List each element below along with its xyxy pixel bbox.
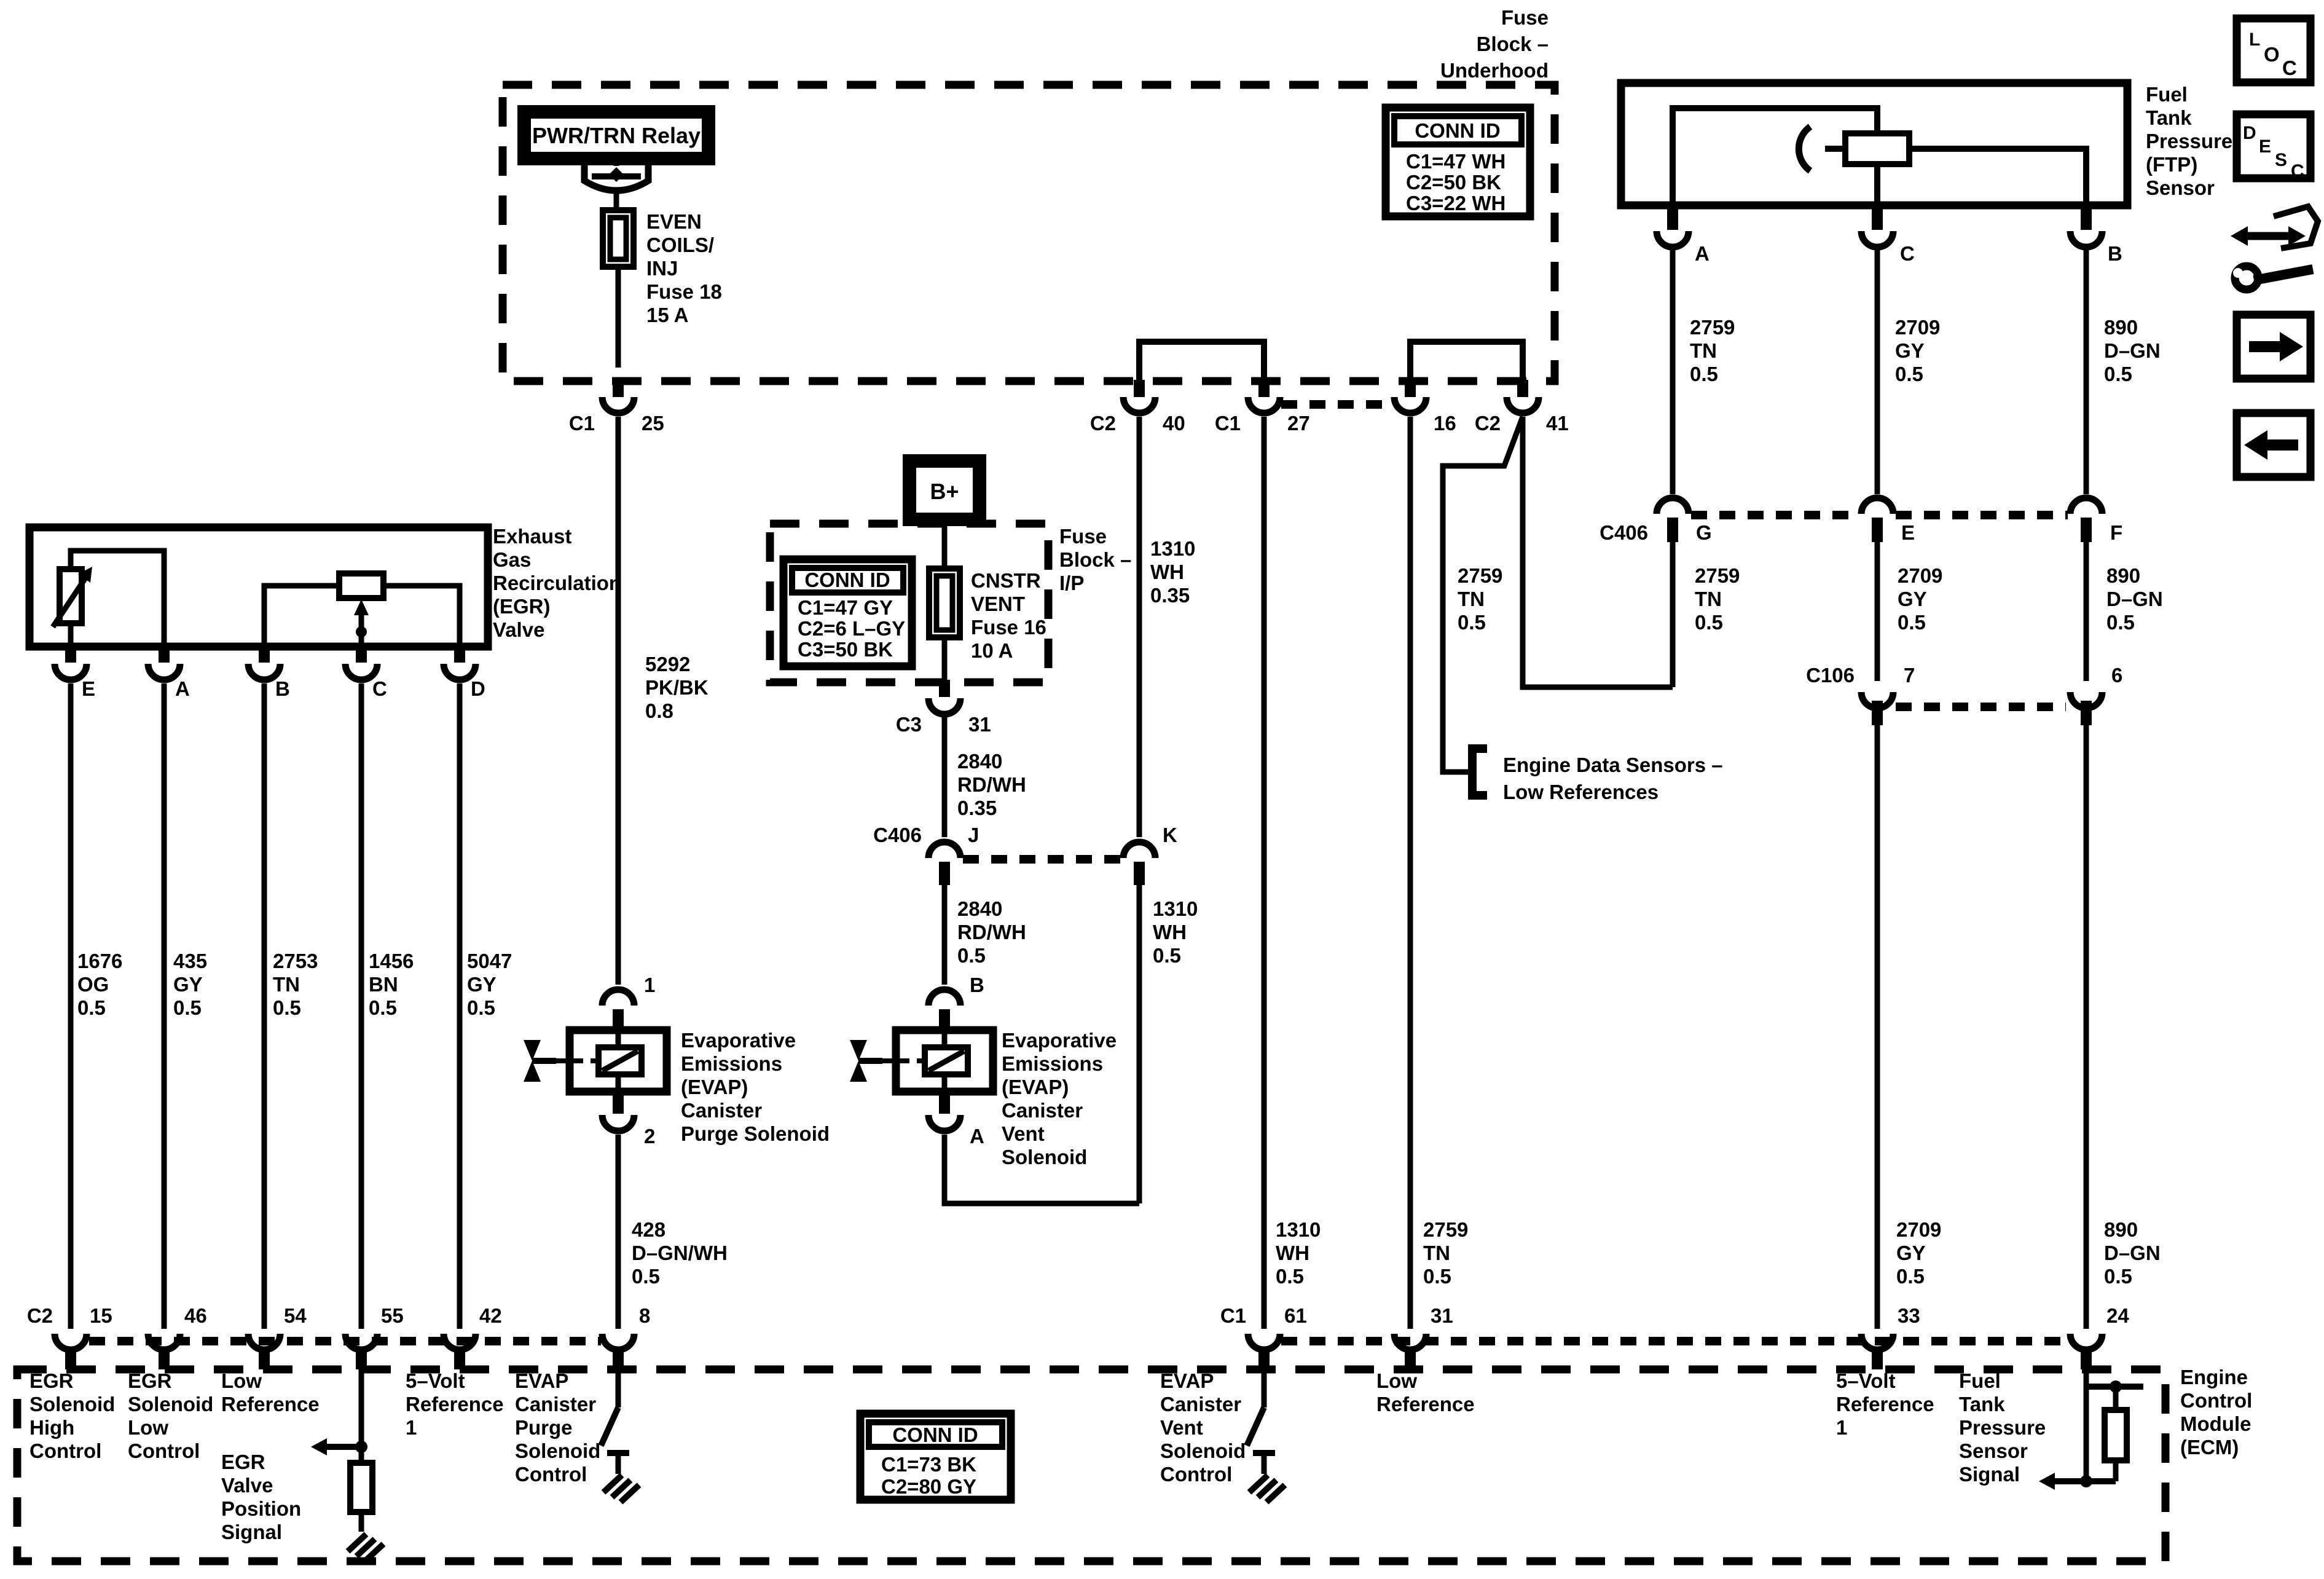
svg-text:1310: 1310 [1276, 1218, 1321, 1241]
svg-text:EGR: EGR [221, 1451, 265, 1473]
svg-text:Control: Control [515, 1463, 587, 1486]
svg-text:8: 8 [639, 1304, 650, 1327]
ip-conn-id-box: CONN ID C1=47 GY C2=6 L–GY C3=50 BK [783, 559, 912, 666]
svg-text:C2=80 GY: C2=80 GY [881, 1475, 976, 1498]
underhood-title: Fuse [1501, 6, 1549, 29]
svg-text:D–GN: D–GN [2104, 339, 2161, 362]
svg-text:2840: 2840 [957, 897, 1002, 920]
svg-text:1676: 1676 [77, 950, 122, 972]
ground-symbol-55 [348, 1534, 383, 1561]
svg-text:Solenoid: Solenoid [515, 1439, 600, 1462]
egr-connector-row [55, 647, 476, 680]
svg-text:2753: 2753 [273, 950, 318, 972]
svg-text:TN: TN [273, 973, 300, 996]
svg-text:Valve: Valve [493, 618, 544, 641]
svg-text:C1=47 GY: C1=47 GY [798, 596, 893, 619]
b-plus-label: B+ [930, 479, 959, 504]
egr-label: Exhaust [493, 525, 571, 548]
svg-text:PK/BK: PK/BK [645, 676, 709, 699]
ftp-wires: 2759 TN 0.5 2709 GY 0.5 890 D–GN 0.5 [1673, 247, 2161, 494]
svg-text:High: High [29, 1416, 74, 1439]
svg-text:Control: Control [128, 1439, 200, 1462]
purge-solenoid: 1 2 [524, 974, 667, 1148]
svg-text:D–GN: D–GN [2106, 588, 2163, 610]
svg-text:0.5: 0.5 [632, 1265, 660, 1288]
ftp-pin-b: B [2108, 242, 2122, 265]
svg-text:(EGR): (EGR) [493, 595, 551, 618]
wiring-diagram: Fuse Block – Underhood PWR/TRN Relay EVE… [0, 0, 2324, 1579]
svg-text:0.5: 0.5 [369, 996, 397, 1019]
jumper-40-27 [1139, 342, 1264, 380]
svg-text:E: E [2259, 136, 2271, 157]
svg-text:890: 890 [2106, 564, 2140, 587]
svg-text:Signal: Signal [1959, 1463, 2020, 1486]
svg-text:Low: Low [128, 1416, 168, 1439]
svg-text:5–Volt: 5–Volt [1836, 1369, 1896, 1392]
svg-text:0.5: 0.5 [173, 996, 202, 1019]
svg-text:0.5: 0.5 [273, 996, 301, 1019]
svg-text:Low: Low [221, 1369, 262, 1392]
ecm-purge-driver [601, 1352, 639, 1502]
purge-label: Evaporative [681, 1029, 796, 1052]
svg-text:55: 55 [381, 1304, 404, 1327]
svg-text:INJ: INJ [646, 257, 678, 280]
low-reference-branch: Engine Data Sensors – Low References 275… [1443, 417, 1723, 803]
egr-pin-a: A [175, 677, 190, 700]
egr-valve: Exhaust Gas Recirculation (EGR) Valve [29, 525, 621, 700]
svg-text:0.35: 0.35 [957, 797, 997, 819]
svg-text:46: 46 [184, 1304, 207, 1327]
svg-text:0.35: 0.35 [1150, 584, 1190, 607]
svg-text:(FTP): (FTP) [2146, 153, 2197, 176]
egr-wires [71, 683, 460, 1329]
ecm-function-labels: EGR Solenoid High Control EGR Solenoid L… [29, 1369, 2046, 1543]
svg-text:Control: Control [2180, 1389, 2252, 1412]
svg-text:41: 41 [1546, 412, 1569, 435]
svg-text:WH: WH [1150, 561, 1184, 583]
c406-pin-e: E [1901, 521, 1915, 544]
svg-text:2759: 2759 [1690, 316, 1735, 339]
svg-text:Pressure: Pressure [1959, 1416, 2046, 1439]
svg-text:OG: OG [77, 973, 109, 996]
svg-text:WH: WH [1276, 1242, 1309, 1264]
svg-text:0.5: 0.5 [1695, 611, 1723, 634]
cnstr-fuse-label: CNSTR [971, 569, 1041, 592]
svg-text:Canister: Canister [681, 1099, 762, 1122]
svg-text:CONN ID: CONN ID [892, 1423, 978, 1446]
svg-text:54: 54 [284, 1304, 307, 1327]
svg-text:C1: C1 [1215, 412, 1241, 435]
svg-text:I/P: I/P [1059, 572, 1084, 594]
svg-text:C3=50 BK: C3=50 BK [798, 638, 893, 661]
svg-text:Canister: Canister [1160, 1393, 1241, 1416]
svg-text:RD/WH: RD/WH [957, 773, 1026, 796]
svg-text:Gas: Gas [493, 548, 531, 571]
svg-text:Fuse 16: Fuse 16 [971, 616, 1046, 639]
svg-text:TN: TN [1458, 588, 1485, 610]
svg-text:5292: 5292 [645, 653, 690, 675]
pin-c1-25: C1 [569, 412, 595, 435]
next-button[interactable] [2237, 315, 2310, 379]
svg-text:C2: C2 [1090, 412, 1116, 435]
svg-text:GY: GY [173, 973, 203, 996]
svg-text:435: 435 [173, 950, 207, 972]
svg-text:O: O [2264, 43, 2280, 66]
c406-pin-k: K [1163, 824, 1177, 846]
ecm: C2 15 46 54 55 42 8 C1 61 31 33 24 [17, 1304, 2252, 1561]
fuse-18-symbol [603, 210, 634, 368]
svg-text:0.5: 0.5 [1895, 363, 1923, 385]
svg-text:Reference: Reference [1836, 1393, 1934, 1416]
svg-text:Sensor: Sensor [1959, 1439, 2028, 1462]
c406-pin-f: F [2110, 521, 2122, 544]
svg-text:(EVAP): (EVAP) [681, 1076, 748, 1098]
svg-text:1456: 1456 [369, 950, 414, 972]
svg-text:D: D [2243, 123, 2256, 143]
egr-potentiometer [53, 551, 164, 647]
svg-text:Emissions: Emissions [1002, 1052, 1103, 1075]
svg-text:0.5: 0.5 [1458, 611, 1486, 634]
svg-text:Low References: Low References [1503, 781, 1659, 803]
svg-text:0.5: 0.5 [77, 996, 106, 1019]
svg-text:WH: WH [1153, 921, 1187, 943]
ip-title: Fuse [1059, 525, 1107, 548]
ecm-pin-c2: C2 [27, 1304, 53, 1327]
svg-text:Pressure: Pressure [2146, 130, 2232, 152]
svg-text:GY: GY [1895, 339, 1925, 362]
c106-connector: C106 7 6 [1806, 664, 2122, 725]
svg-text:Solenoid: Solenoid [1002, 1146, 1087, 1168]
svg-text:Tank: Tank [2146, 106, 2192, 129]
svg-text:(EVAP): (EVAP) [1002, 1076, 1069, 1098]
svg-text:Control: Control [29, 1439, 101, 1462]
svg-text:(ECM): (ECM) [2180, 1436, 2239, 1459]
ecm-vent-driver [1247, 1352, 1285, 1502]
pwr-trn-relay-label: PWR/TRN Relay [532, 123, 701, 148]
ecm-pin-c1: C1 [1220, 1304, 1246, 1327]
svg-text:24: 24 [2106, 1304, 2129, 1327]
svg-text:Reference: Reference [406, 1393, 504, 1416]
svg-text:Purge Solenoid: Purge Solenoid [681, 1122, 830, 1145]
svg-text:TN: TN [1690, 339, 1717, 362]
desc-button[interactable]: D E S C [2237, 114, 2310, 181]
svg-text:EGR: EGR [29, 1369, 74, 1392]
svg-text:0.5: 0.5 [1898, 611, 1926, 634]
vent-solenoid: B A [850, 974, 993, 1148]
svg-text:EVAP: EVAP [1160, 1369, 1214, 1392]
c406-pin-g: G [1696, 521, 1712, 544]
c106-label: C106 [1806, 664, 1855, 687]
ftp-sensor: Fuel Tank Pressure (FTP) Sensor A C B [1621, 83, 2232, 265]
svg-text:42: 42 [479, 1304, 502, 1327]
ground-symbol-8 [603, 1475, 639, 1502]
svg-text:890: 890 [2104, 316, 2138, 339]
svg-text:TN: TN [1423, 1242, 1450, 1264]
svg-text:C1=73 BK: C1=73 BK [881, 1453, 976, 1476]
svg-text:0.5: 0.5 [2106, 611, 2135, 634]
ftp-label: Fuel [2146, 83, 2188, 106]
fuse18-label: EVEN [646, 210, 702, 233]
wiring-diagram-page: Fuse Block – Underhood PWR/TRN Relay EVE… [0, 0, 2324, 1579]
purge-pin-1: 1 [644, 974, 655, 996]
relay-contact-symbol [584, 159, 648, 210]
svg-text:0.5: 0.5 [1153, 944, 1181, 967]
egr-wire-labels: 1676 OG 0.5 435 GY 0.5 2753 TN 0.5 1456 … [77, 950, 512, 1019]
ftp-sensor-element [1673, 108, 2086, 205]
vent-pin-b: B [970, 974, 984, 996]
c406-pin-j: J [968, 824, 979, 846]
c106-pin-7: 7 [1904, 664, 1915, 687]
ip-pin-31: 31 [968, 713, 991, 736]
svg-text:C: C [2282, 57, 2297, 79]
svg-text:Solenoid: Solenoid [128, 1393, 213, 1416]
svg-text:L: L [2249, 30, 2260, 50]
svg-text:1310: 1310 [1153, 897, 1198, 920]
svg-text:Solenoid: Solenoid [29, 1393, 115, 1416]
svg-text:Fuse 18: Fuse 18 [646, 280, 722, 303]
svg-text:GY: GY [1896, 1242, 1926, 1264]
svg-text:Recirculation: Recirculation [493, 572, 621, 594]
svg-text:CONN ID: CONN ID [1415, 119, 1500, 142]
svg-text:Purge: Purge [515, 1416, 573, 1439]
svg-text:2709: 2709 [1896, 1218, 1941, 1241]
svg-text:Low: Low [1376, 1369, 1417, 1392]
svg-text:2759: 2759 [1458, 564, 1502, 587]
cnstr-vent-fuse-symbol [929, 569, 960, 681]
svg-text:EVAP: EVAP [515, 1369, 568, 1392]
underhood-conn-id-box: CONN ID C1=47 WH C2=50 BK C3=22 WH [1386, 108, 1530, 216]
svg-text:VENT: VENT [971, 593, 1025, 615]
svg-text:S: S [2275, 150, 2287, 170]
svg-text:2759: 2759 [1423, 1218, 1468, 1241]
svg-text:C2: C2 [1475, 412, 1501, 435]
svg-text:CONN ID: CONN ID [804, 569, 890, 591]
svg-text:C1=47 WH: C1=47 WH [1406, 150, 1505, 173]
ecm-egr-position-input [311, 1352, 383, 1561]
service-tool-icon[interactable] [2231, 207, 2318, 289]
svg-text:1: 1 [1836, 1416, 1847, 1439]
svg-text:Module: Module [2180, 1412, 2251, 1435]
svg-text:61: 61 [1284, 1304, 1307, 1327]
purge-circuit: 5292 PK/BK 0.8 1 2 Evaporative Emissions… [524, 417, 830, 1329]
svg-text:Reference: Reference [1376, 1393, 1475, 1416]
svg-text:GY: GY [1898, 588, 1927, 610]
svg-text:COILS/: COILS/ [646, 234, 714, 256]
svg-text:Reference: Reference [221, 1393, 320, 1416]
back-button[interactable] [2237, 413, 2310, 477]
svg-text:Valve: Valve [221, 1474, 273, 1497]
svg-text:0.5: 0.5 [1276, 1265, 1304, 1288]
svg-text:Vent: Vent [1160, 1416, 1203, 1439]
svg-text:1: 1 [406, 1416, 417, 1439]
svg-text:Underhood: Underhood [1440, 59, 1549, 82]
svg-text:2840: 2840 [957, 750, 1002, 773]
svg-text:0.5: 0.5 [2104, 1265, 2132, 1288]
c106-pin-6: 6 [2111, 664, 2122, 687]
svg-text:C: C [2291, 161, 2304, 181]
svg-text:Vent: Vent [1002, 1122, 1045, 1145]
svg-text:0.8: 0.8 [645, 699, 673, 722]
svg-text:C3=22 WH: C3=22 WH [1406, 192, 1505, 215]
svg-text:10 A: 10 A [971, 639, 1013, 662]
svg-text:0.5: 0.5 [1896, 1265, 1925, 1288]
ftp-pin-c: C [1900, 242, 1915, 265]
svg-text:C2=50 BK: C2=50 BK [1406, 171, 1501, 194]
note-bracket [1472, 749, 1487, 795]
egr-pin-c: C [372, 677, 387, 700]
svg-text:BN: BN [369, 973, 398, 996]
svg-text:C2=6 L–GY: C2=6 L–GY [798, 617, 905, 640]
vent-pin-a: A [970, 1125, 984, 1148]
svg-text:5047: 5047 [467, 950, 512, 972]
fuse-block-underhood: Fuse Block – Underhood PWR/TRN Relay EVE… [503, 6, 1569, 435]
svg-text:Block –: Block – [1059, 548, 1131, 571]
svg-text:2709: 2709 [1895, 316, 1940, 339]
svg-text:TN: TN [1695, 588, 1722, 610]
svg-text:16: 16 [1434, 412, 1456, 435]
vent-label: Evaporative [1002, 1029, 1117, 1052]
c406-right-label: C406 [1600, 521, 1648, 544]
c406-left-label: C406 [873, 824, 922, 846]
svg-text:40: 40 [1163, 412, 1185, 435]
purge-pin-2: 2 [644, 1125, 655, 1148]
toolbar: L O C D E S C [2231, 18, 2318, 477]
svg-text:Tank: Tank [1959, 1393, 2005, 1416]
svg-text:2759: 2759 [1695, 564, 1740, 587]
svg-text:15 A: 15 A [646, 304, 688, 326]
ftp-pin-a: A [1695, 242, 1710, 265]
svg-text:0.5: 0.5 [957, 944, 986, 967]
svg-text:Position: Position [221, 1497, 301, 1520]
svg-text:0.5: 0.5 [467, 996, 495, 1019]
egr-wiper [264, 573, 460, 647]
svg-text:27: 27 [1287, 412, 1310, 435]
svg-text:0.5: 0.5 [2104, 363, 2132, 385]
svg-text:0.5: 0.5 [1423, 1265, 1451, 1288]
svg-text:Canister: Canister [1002, 1099, 1083, 1122]
svg-text:25: 25 [642, 412, 664, 435]
svg-text:Sensor: Sensor [2146, 176, 2215, 199]
ecm-label: Engine [2180, 1366, 2248, 1388]
svg-text:Signal: Signal [221, 1521, 282, 1543]
svg-text:890: 890 [2104, 1218, 2138, 1241]
egr-pin-b: B [275, 677, 290, 700]
svg-text:Fuel: Fuel [1959, 1369, 2001, 1392]
ground-symbol-61 [1249, 1475, 1285, 1502]
egr-pin-d: D [471, 677, 485, 700]
svg-text:428: 428 [632, 1218, 665, 1241]
egr-pin-e: E [82, 677, 95, 700]
ip-pin-c3: C3 [896, 713, 922, 736]
svg-text:33: 33 [1898, 1304, 1920, 1327]
ecm-conn-id-box: CONN ID C1=73 BK C2=80 GY [860, 1414, 1011, 1500]
svg-text:Solenoid: Solenoid [1160, 1439, 1246, 1462]
svg-text:D–GN: D–GN [2104, 1242, 2161, 1264]
jumper-16-41 [1410, 342, 1523, 380]
svg-text:0.5: 0.5 [1690, 363, 1718, 385]
svg-text:Block –: Block – [1477, 33, 1549, 55]
svg-text:31: 31 [1431, 1304, 1453, 1327]
loc-button[interactable]: L O C [2237, 18, 2310, 82]
svg-text:2709: 2709 [1898, 564, 1942, 587]
svg-text:RD/WH: RD/WH [957, 921, 1026, 943]
fuse-block-ip: B+ Fuse Block – I/P CNSTR VENT Fuse 16 1… [770, 461, 1131, 837]
svg-text:1310: 1310 [1150, 537, 1195, 560]
svg-text:5–Volt: 5–Volt [406, 1369, 465, 1392]
engine-data-note: Engine Data Sensors – [1503, 754, 1723, 776]
svg-text:EGR: EGR [128, 1369, 172, 1392]
svg-text:GY: GY [467, 973, 497, 996]
c406-jk-connector: C406 J K [873, 824, 1177, 885]
svg-text:Control: Control [1160, 1463, 1232, 1486]
svg-text:D–GN/WH: D–GN/WH [632, 1242, 728, 1264]
svg-text:Canister: Canister [515, 1393, 596, 1416]
c406-gef-connector: C406 G E F [1600, 498, 2122, 544]
svg-text:15: 15 [90, 1304, 112, 1327]
svg-text:Emissions: Emissions [681, 1052, 782, 1075]
